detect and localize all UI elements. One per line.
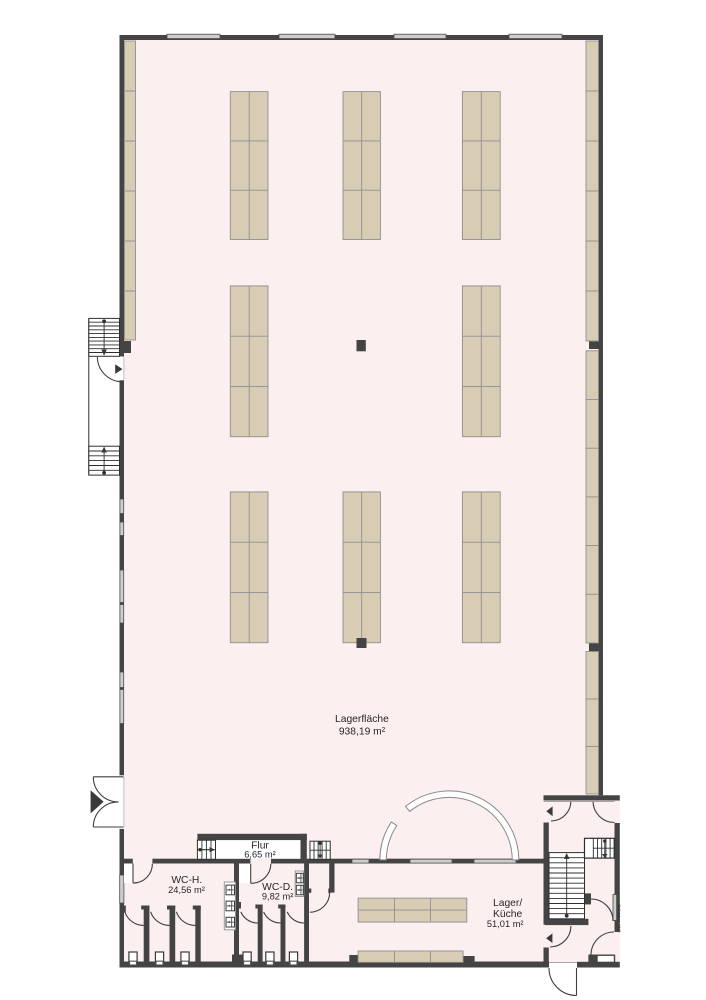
svg-text:938,19 m²: 938,19 m² (339, 726, 386, 737)
svg-text:9,82 m²: 9,82 m² (262, 891, 294, 901)
svg-text:51,01 m²: 51,01 m² (487, 919, 524, 929)
svg-text:Lager/: Lager/ (493, 898, 522, 909)
svg-text:6,65 m²: 6,65 m² (244, 849, 276, 859)
svg-text:Lagerfläche: Lagerfläche (335, 714, 389, 725)
svg-text:24,56 m²: 24,56 m² (168, 885, 205, 895)
svg-text:Maßstab ca. 1:100: Maßstab ca. 1:100 (617, 905, 621, 933)
